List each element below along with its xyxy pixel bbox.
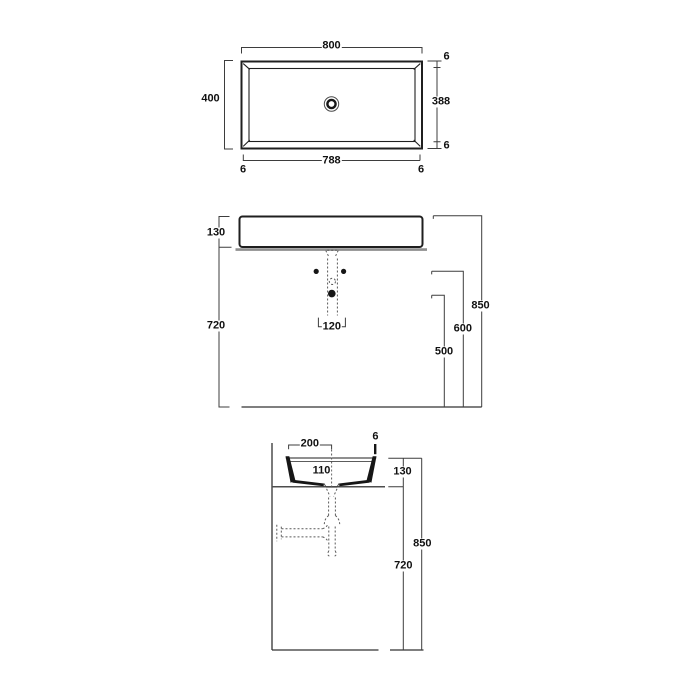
dim-label-overall-depth: 400 — [200, 94, 220, 105]
dim-line-overall-depth — [225, 61, 234, 150]
waste-pipe-upper-dashed — [329, 498, 336, 516]
waste-funnel-dashed — [326, 250, 338, 257]
dim-label-drain-height: 500 — [434, 346, 454, 357]
dim-label-rim-left: 6 — [239, 164, 247, 175]
basin-wall-right-section — [367, 456, 377, 483]
top-view — [225, 48, 442, 161]
pipe-junction-dashed — [323, 524, 328, 541]
basin-front-profile — [240, 217, 423, 248]
front-view — [219, 216, 482, 407]
dim-line-left-heights — [219, 217, 232, 408]
basin-bottom-section — [292, 481, 369, 485]
waste-pipe-lower-dashed — [329, 527, 335, 552]
basin-outer-rect — [242, 62, 423, 149]
dim-label-tap-spacing: 120 — [322, 321, 342, 332]
dim-label-drain-offset: 200 — [300, 438, 320, 449]
dim-line-fixing-height — [432, 271, 464, 407]
dim-label-fixing-height: 600 — [453, 323, 473, 334]
dim-label-overall-height: 850 — [470, 301, 490, 312]
dim-label-overall-height-side: 850 — [412, 539, 432, 550]
dim-label-inner-width: 788 — [321, 156, 341, 167]
dim-label-counter-height: 720 — [206, 321, 226, 332]
waste-pipe-dashed — [328, 259, 338, 316]
dim-label-rim-thickness: 6 — [371, 432, 379, 443]
basin-wall-left-section — [286, 456, 296, 483]
waste-funnel-dashed-side — [327, 489, 337, 497]
drawing-linework — [0, 0, 700, 700]
technical-drawing-canvas: 800 400 6 388 6 788 6 6 130 720 120 850 … — [0, 0, 700, 700]
dim-label-tap-offset: 110 — [312, 466, 332, 477]
dim-label-basin-height: 130 — [206, 227, 226, 238]
fixing-hole-right-icon — [341, 269, 346, 274]
dim-label-basin-height-side: 130 — [392, 466, 412, 477]
dim-label-rim-top: 6 — [442, 52, 450, 63]
dim-label-rim-bottom: 6 — [442, 140, 450, 151]
wall-flange-dashed — [277, 525, 282, 542]
dim-label-counter-height-side: 720 — [393, 561, 413, 572]
dim-label-rim-right: 6 — [417, 164, 425, 175]
fixing-hole-left-icon — [314, 269, 319, 274]
pipe-joint-dashed-circle — [329, 278, 335, 284]
trap-collar-dashed — [324, 516, 339, 526]
wall-outlet-pipe-dashed — [282, 529, 323, 537]
pipe-end-dashed — [328, 551, 336, 556]
drain-outlet-icon — [328, 290, 336, 298]
dim-label-overall-width: 800 — [321, 41, 341, 52]
dim-lines-side-heights — [388, 458, 421, 650]
dim-label-inner-depth: 388 — [431, 96, 451, 107]
